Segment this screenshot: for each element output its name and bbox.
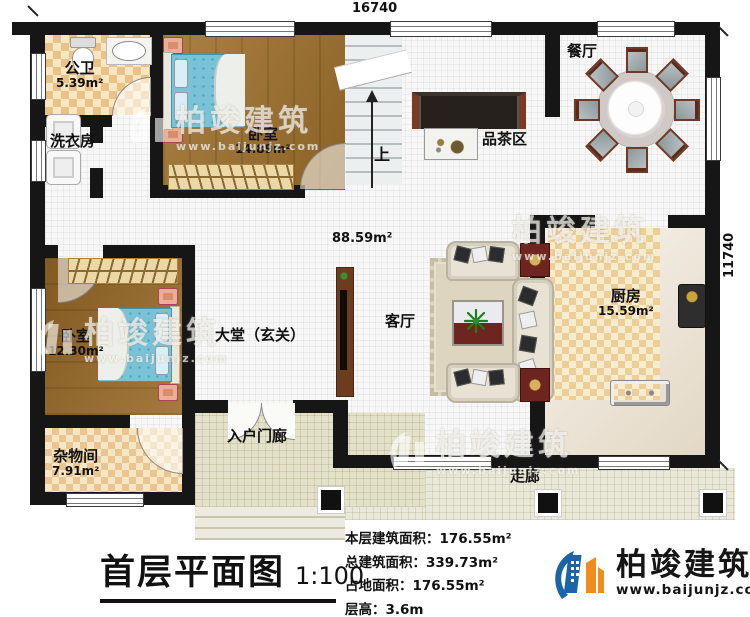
window-left-bedroom2 [31,288,46,372]
wardrobe1 [168,164,294,190]
stat-line: 占地面积：176.55m² [345,575,512,599]
sofa-pillow [488,246,505,263]
porch-pillar [535,490,561,516]
sink-basin-icon [112,41,146,61]
room-label-bathroom: 公卫5.39m² [56,60,103,90]
stair-arrow-head [366,90,378,102]
tv-icon [340,290,347,370]
wall-storage-right [182,415,195,505]
stat-line: 本层建筑面积：176.55m² [345,528,512,552]
wall-kitchen-top-b [668,215,720,228]
stair-arrow-line [371,100,373,188]
window-top-2 [390,21,492,37]
sofa-pillow [471,246,488,263]
window-left-laundry [31,140,46,182]
window-top-1 [205,21,295,37]
wardrobe2 [68,258,178,284]
dining-table-center [628,101,644,117]
kitchen-sink-icon [610,380,670,406]
end-table [520,368,550,402]
porch-pillar [700,490,726,516]
bed1-pillow [174,92,188,121]
sofa-pillow [471,369,488,386]
dining-chair [626,47,648,73]
nightstand [158,288,178,305]
dimension-tick [27,5,38,16]
dimension-right: 11740 [722,233,737,278]
dining-chair [674,99,700,121]
dining-chair [574,99,600,121]
room-label-bedroom2: 卧室12.30m² [48,328,104,358]
building-stats: 本层建筑面积：176.55m² 总建筑面积：339.73m² 占地面积：176.… [345,528,512,617]
sofa-pillow [519,311,538,330]
stove-icon [678,284,706,328]
window-top-3 [597,21,675,37]
window-bottom-kitchen [598,456,670,470]
window-bottom-living [393,456,492,470]
drawing-title: 首层平面图 [100,553,285,593]
tea-table [424,128,478,160]
room-label-dining: 餐厅 [567,43,597,60]
company-logo: 柏竣建筑 www.baijunjz.com [552,543,750,605]
nightstand [158,384,178,401]
dimension-top: 16740 [352,1,397,16]
wall-storage-top [30,415,130,428]
room-label-corridor: 走廊 [510,468,540,485]
bed2-pillow [155,346,169,375]
drawing-title-block: 首层平面图1:100 [100,544,364,603]
title-underline [100,599,336,603]
window-bottom-storage [66,493,144,507]
room-label-tea-area: 品茶区 [482,131,527,148]
sofa-pillow [519,335,538,354]
company-logo-icon [552,543,608,605]
porch-edge [345,507,425,520]
corridor-floor [425,468,735,520]
room-label-living: 客厅 [385,313,415,330]
window-right-dining [706,77,721,161]
sofa-pillow [488,369,504,385]
wall-bedroom2-top-a [30,245,58,258]
stat-line: 总建筑面积：339.73m² [345,552,512,576]
bed1-pillow [174,59,188,88]
wall-dining-divider [545,22,560,117]
company-url: www.baijunjz.com [616,584,750,598]
room-label-laundry: 洗衣房 [50,133,95,150]
porch-pillar [318,487,344,513]
room-label-kitchen: 厨房15.59m² [598,288,654,318]
room-label-storage: 杂物间7.91m² [52,448,99,478]
wall-bedroom2-right [182,245,195,415]
plant-icon [463,308,489,334]
wall-laundry-stub-b [90,168,103,198]
dining-chair [626,147,648,173]
bed2-pillow [155,313,169,342]
room-label-bedroom1: 卧室14.89m² [235,126,291,156]
room-label-stairs-up: 上 [374,146,390,164]
stat-line: 层高：3.6m [345,599,512,617]
hall-area-label: 88.59m² [332,232,392,246]
floor-plan-canvas: 16740 11740 公卫5.39m² 洗衣房 卧室14.89m² 上 餐厅 … [0,0,750,617]
room-label-porch: 入户门廊 [227,428,287,445]
window-left-bath [31,53,46,100]
end-table [520,243,550,277]
bed1-blanket-fold [214,54,245,126]
room-label-lobby: 大堂（玄关） [215,327,305,344]
plant-small-icon [340,272,348,280]
tea-bench [412,92,526,129]
company-name: 柏竣建筑 [616,550,750,581]
wall-living-left [333,400,348,468]
washer-icon [46,150,81,185]
